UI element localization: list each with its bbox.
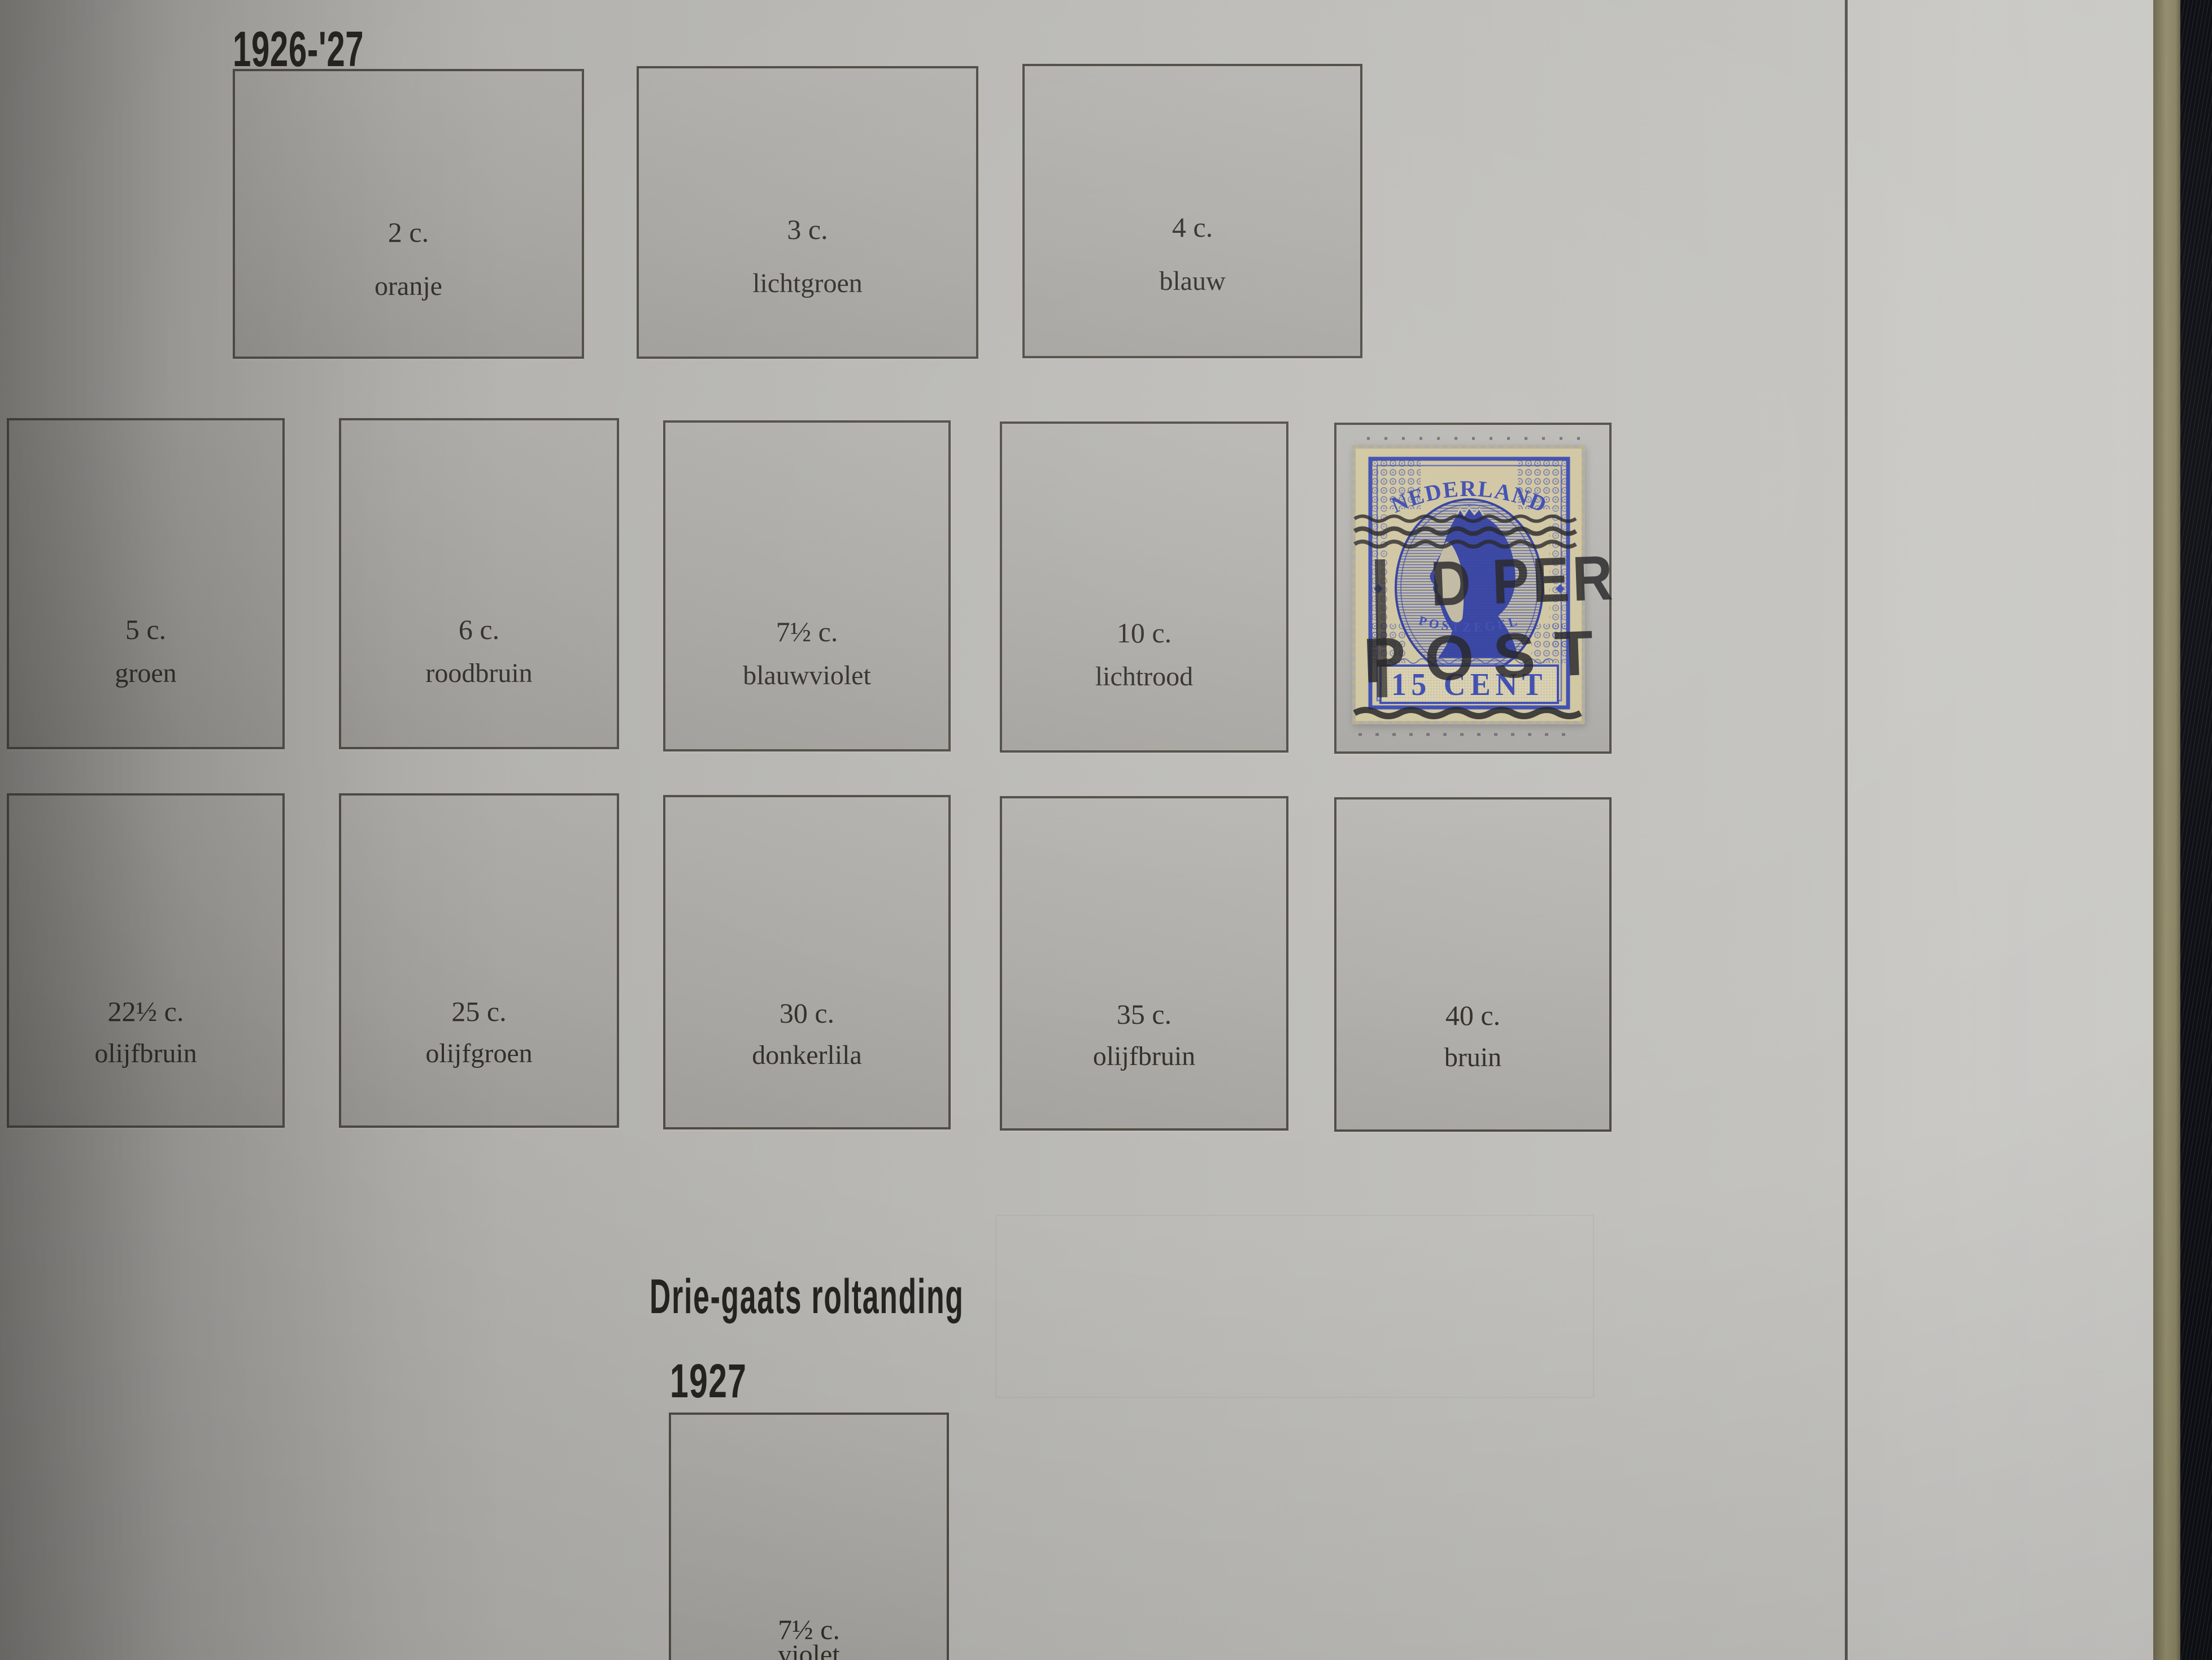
- subsection-year: 1927: [670, 1354, 747, 1409]
- stamp-slot-6c: 6 c. roodbruin: [339, 418, 619, 749]
- slot-denomination: 5 c.: [9, 615, 282, 644]
- cancellation-overprint: D PER POST: [1333, 429, 1649, 746]
- slot-color-name: blauw: [1025, 268, 1360, 295]
- cancel-text-line2: POST: [1362, 617, 1613, 696]
- cancel-wavy-line: [1355, 516, 1576, 522]
- stamp-album-page-photo: 1926-'27 2 c. oranje 3 c. lichtgroen 4 c…: [0, 0, 2212, 1660]
- slot-color-name: donkerlila: [665, 1042, 948, 1069]
- cancel-wavy-line: [1355, 529, 1576, 534]
- cancel-bottom-wavy-line: [1355, 710, 1580, 716]
- slot-color-name: groen: [9, 660, 282, 687]
- slot-color-name: bruin: [1336, 1044, 1609, 1071]
- slot-color-name: lichtrood: [1002, 663, 1286, 690]
- slot-denomination: 7½ c.: [665, 618, 948, 646]
- slot-color-name: lichtgroen: [639, 270, 976, 297]
- stamp-slot-5c: 5 c. groen: [7, 418, 285, 749]
- slot-color-name: olijfbruin: [1002, 1043, 1286, 1070]
- slot-color-name: olijfbruin: [9, 1040, 282, 1067]
- page-right-margin: [1848, 0, 2153, 1660]
- stamp-slot-4c: 4 c. blauw: [1022, 64, 1362, 358]
- section-heading: Drie-gaats roltanding: [650, 1269, 964, 1325]
- album-cover: [2180, 0, 2212, 1660]
- slot-color-name: olijfgroen: [341, 1040, 617, 1067]
- slot-denomination: 40 c.: [1336, 1001, 1609, 1029]
- stamp-slot-35c: 35 c. olijfbruin: [1000, 796, 1288, 1131]
- slot-denomination: 10 c.: [1002, 619, 1286, 647]
- slot-denomination: 2 c.: [235, 218, 582, 246]
- stamp-slot-3c: 3 c. lichtgroen: [637, 66, 978, 359]
- slot-denomination: 30 c.: [665, 999, 948, 1027]
- stamp-slot-7half-c: 7½ c. blauwviolet: [663, 420, 951, 751]
- stamp-slot-10c: 10 c. lichtrood: [1000, 421, 1288, 753]
- slot-color-name: roodbruin: [341, 660, 617, 687]
- page-showthrough: [995, 1215, 1594, 1398]
- stamp-slot-2c: 2 c. oranje: [233, 69, 584, 359]
- cancel-text-line1: D PER: [1430, 543, 1617, 620]
- stamp-slot-1927-7half-c: 7½ c. violet: [669, 1413, 949, 1660]
- stamp-slot-30c: 30 c. donkerlila: [663, 795, 951, 1129]
- stamp-slot-25c: 25 c. olijfgroen: [339, 793, 619, 1128]
- slot-denomination: 3 c.: [639, 215, 976, 244]
- slot-color-name: violet: [671, 1641, 947, 1660]
- slot-denomination: 35 c.: [1002, 1000, 1286, 1028]
- slot-color-name: blauwviolet: [665, 662, 948, 689]
- slot-color-name: oranje: [235, 273, 582, 300]
- slot-denomination: 4 c.: [1025, 213, 1360, 241]
- stamp-slot-40c: 40 c. bruin: [1334, 797, 1612, 1132]
- slot-denomination: 25 c.: [341, 997, 617, 1025]
- slot-denomination: 22½ c.: [9, 997, 282, 1025]
- slot-denomination: 6 c.: [341, 615, 617, 644]
- album-page-edges: [2153, 0, 2181, 1660]
- stamp-slot-22half-c: 22½ c. olijfbruin: [7, 793, 285, 1128]
